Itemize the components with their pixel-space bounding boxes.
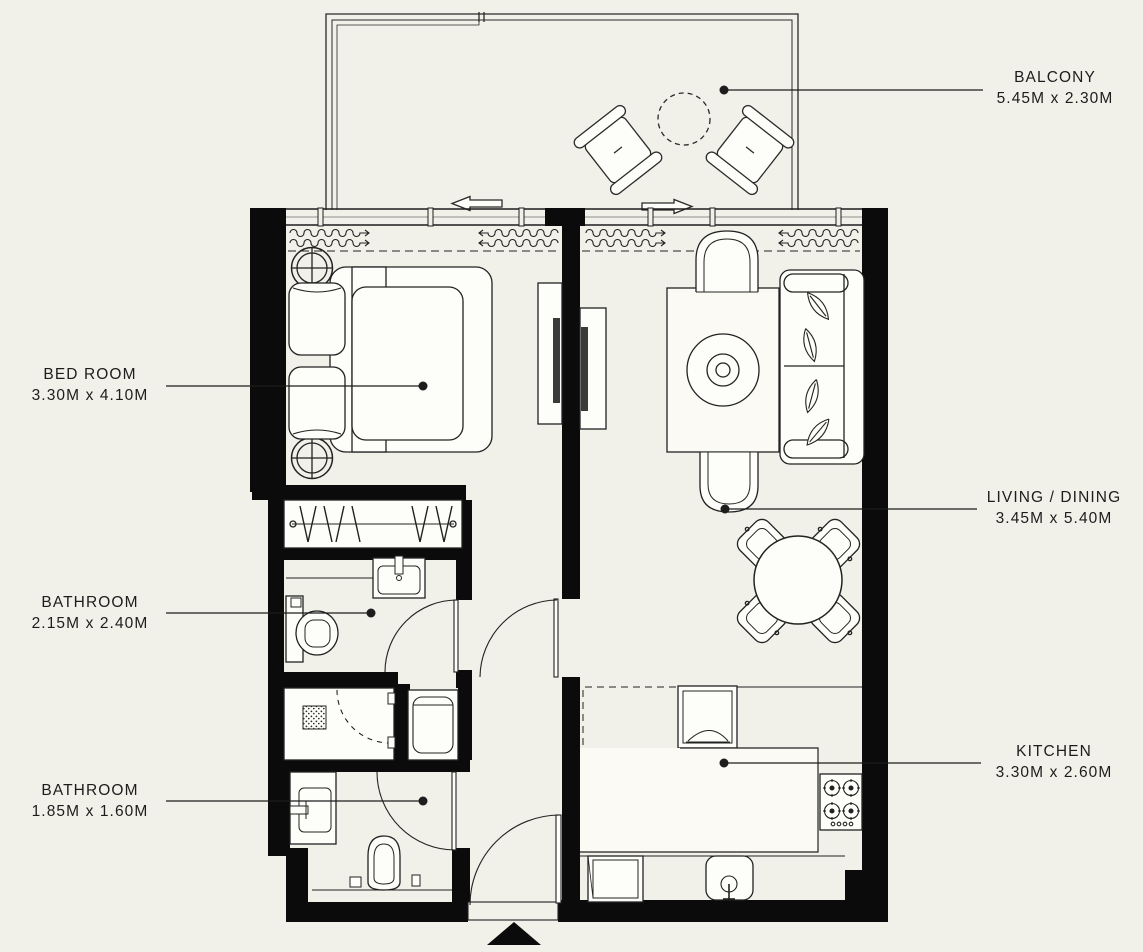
room-name: BED ROOM: [14, 364, 166, 385]
double-bed: [289, 267, 492, 452]
sofa-icon: [780, 270, 864, 464]
room-label-balcony: BALCONY 5.45M x 2.30M: [980, 67, 1130, 109]
wall-segment: [268, 672, 398, 688]
leader-balcony: [720, 86, 984, 95]
room-dimensions: 3.45M x 5.40M: [966, 508, 1142, 529]
room-label-bathroom-2: BATHROOM 1.85M x 1.60M: [14, 780, 166, 822]
wall-segment: [862, 208, 888, 872]
pillow-icon: [289, 367, 345, 439]
balcony-railing: [326, 12, 798, 210]
washing-machine: [408, 690, 458, 760]
wall-segment: [300, 902, 468, 922]
wall-segment: [558, 900, 848, 922]
room-name: BATHROOM: [14, 780, 166, 801]
room-name: KITCHEN: [978, 741, 1130, 762]
dining-table-icon: [754, 536, 842, 624]
room-dimensions: 3.30M x 2.60M: [978, 762, 1130, 783]
balcony-chair-left: [572, 103, 664, 196]
wall-segment: [562, 677, 580, 902]
room-label-living-dining: LIVING / DINING 3.45M x 5.40M: [966, 487, 1142, 529]
room-label-kitchen: KITCHEN 3.30M x 2.60M: [978, 741, 1130, 783]
kitchen-sink-icon: [706, 856, 753, 900]
room-name: BALCONY: [980, 67, 1130, 88]
balcony: [326, 12, 798, 214]
tv-unit-bedroom: [538, 283, 562, 424]
dining-set: [732, 514, 866, 649]
toilet-icon: [286, 596, 338, 662]
shower-drain-icon: [303, 706, 326, 729]
kitchen-counter: [580, 748, 845, 856]
bedroom: [288, 230, 562, 479]
curtain-icon: [288, 230, 560, 251]
living-dining: [580, 230, 865, 649]
floor-plan: BALCONY 5.45M x 2.30M BED ROOM 3.30M x 4…: [0, 0, 1143, 952]
room-name: BATHROOM: [14, 592, 166, 613]
armchair-icon: [700, 452, 758, 512]
bedside-lamp-icon: [292, 438, 333, 479]
gas-hob-icon: [820, 774, 862, 830]
room-dimensions: 3.30M x 4.10M: [14, 385, 166, 406]
bathroom-2: [290, 772, 456, 890]
floor-plan-drawing: [0, 0, 1143, 952]
room-dimensions: 2.15M x 2.40M: [14, 613, 166, 634]
room-dimensions: 5.45M x 2.30M: [980, 88, 1130, 109]
room-dimensions: 1.85M x 1.60M: [14, 801, 166, 822]
room-label-bathroom-1: BATHROOM 2.15M x 2.40M: [14, 592, 166, 634]
wall-segment: [562, 212, 580, 599]
wall-segment: [458, 684, 472, 760]
balcony-table: [658, 93, 710, 145]
wall-segment: [452, 848, 470, 904]
entry: [468, 815, 561, 945]
wall-segment: [250, 208, 286, 492]
kitchen: [580, 686, 862, 902]
pillow-icon: [289, 283, 345, 355]
room-label-bedroom: BED ROOM 3.30M x 4.10M: [14, 364, 166, 406]
wall-segment: [252, 485, 466, 500]
armchair-icon: [696, 231, 758, 292]
refrigerator-icon: [678, 686, 737, 748]
room-name: LIVING / DINING: [966, 487, 1142, 508]
entry-door-icon: [470, 815, 561, 905]
wardrobe: [284, 500, 462, 548]
door-icon: [385, 600, 458, 672]
wall-segment: [845, 870, 888, 922]
wash-basin-icon: [290, 772, 336, 844]
wash-basin-icon: [373, 556, 425, 598]
toilet-icon: [350, 836, 420, 890]
dishwasher-icon: [588, 856, 643, 902]
balcony-chair-right: [704, 103, 796, 196]
rug-coffee-table: [667, 288, 779, 452]
entry-threshold: [468, 902, 558, 920]
leader-living: [721, 505, 978, 514]
shower-room: [284, 688, 395, 760]
tv-unit-living: [580, 308, 606, 429]
entry-direction-triangle: [487, 922, 541, 945]
wall-segment: [268, 486, 284, 762]
hallway-door: [480, 599, 558, 677]
